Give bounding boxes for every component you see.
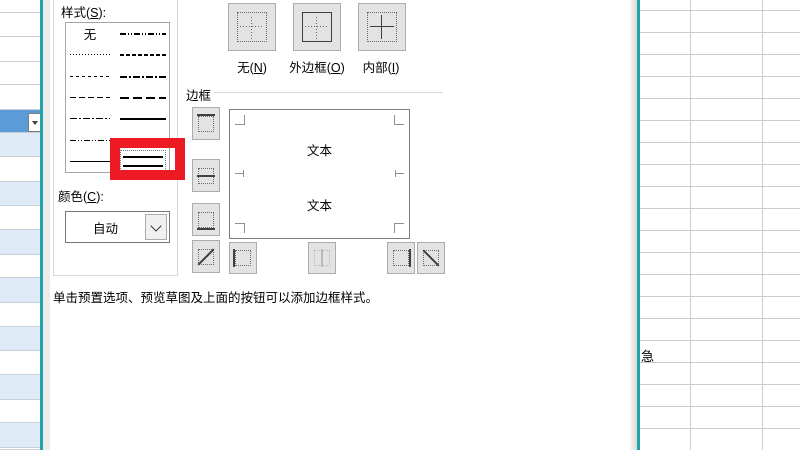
border-top-icon (198, 116, 214, 132)
sheet-row (0, 0, 40, 13)
solid-line (321, 249, 323, 267)
line-style-medium[interactable] (120, 108, 166, 129)
dialog-edge-band-left (43, 0, 50, 450)
line-style-sample (120, 97, 166, 99)
background-spreadsheet-right: 急 (640, 0, 800, 450)
border-left-icon (235, 250, 251, 266)
border-inner-horizontal-icon (198, 168, 214, 184)
line-style-medium-dashed[interactable] (120, 87, 166, 108)
border-group-label: 边框 (186, 85, 211, 104)
border-right-icon (393, 250, 409, 266)
sheet-gridline (690, 0, 691, 450)
dotted-square (198, 116, 214, 132)
border-right-button[interactable] (387, 242, 415, 274)
preview-mid-tick (395, 173, 404, 174)
line-style-sample (120, 54, 166, 56)
line-style-hair[interactable] (70, 44, 110, 65)
sheet-row (0, 13, 40, 37)
line-style-sample (70, 76, 110, 77)
sheet-gridline (762, 0, 763, 450)
line-style-none[interactable]: 无 (70, 23, 110, 44)
border-preview-box[interactable]: 文本 文本 (229, 109, 410, 239)
dotted-square (198, 212, 214, 228)
sheet-row (0, 255, 40, 278)
preview-mid-tick (235, 173, 244, 174)
cross-horizontal (370, 26, 394, 27)
border-diagonal-up-button[interactable] (192, 240, 220, 273)
preset-button-inside[interactable] (358, 3, 406, 51)
border-group-separator (214, 92, 443, 93)
color-combobox-dropdown-button[interactable] (145, 214, 167, 240)
border-bottom-icon (198, 212, 214, 228)
color-label: 颜色(C): (58, 186, 104, 205)
preset-button-none[interactable] (228, 3, 276, 51)
cross-horizontal (240, 26, 264, 27)
dotted-square (393, 250, 409, 266)
line-style-sample (120, 76, 166, 78)
hint-text: 单击预置选项、预览草图及上面的按钮可以添加边框样式。 (53, 287, 613, 306)
line-style-dash-dot-dot[interactable] (70, 130, 110, 151)
preview-corner-mark (235, 115, 245, 125)
sheet-row (0, 278, 40, 303)
line-style-slant-dash-dot[interactable] (120, 44, 166, 65)
line-style-medium-dash-dot[interactable] (120, 66, 166, 87)
border-diagonal-down-icon (423, 250, 439, 266)
red-annotation-box (110, 138, 185, 180)
cross-horizontal (305, 26, 329, 27)
screen: 样式(S): 无 颜色(C): 自动 无(N)外边框(O)内部(I) 边框 文本… (0, 0, 800, 450)
preset-none-icon (237, 12, 267, 42)
line-style-thin[interactable] (70, 151, 110, 172)
border-left-button[interactable] (229, 242, 257, 274)
solid-line (197, 228, 215, 230)
sheet-row (0, 182, 40, 206)
border-diagonal-down-button[interactable] (417, 242, 445, 274)
preview-sample-text-top: 文本 (230, 140, 409, 159)
sheet-row (0, 157, 40, 182)
style-label: 样式(S): (61, 2, 106, 21)
sheet-row (0, 400, 40, 423)
line-style-sample (70, 54, 110, 55)
sheet-row (0, 423, 40, 448)
preset-button-outline[interactable] (293, 3, 341, 51)
line-style-sample (70, 161, 110, 162)
border-diagonal-up-icon (198, 249, 214, 265)
solid-line (197, 114, 215, 116)
line-style-dash-dot[interactable] (70, 108, 110, 129)
sheet-row (0, 206, 40, 230)
line-style-dashed[interactable] (70, 87, 110, 108)
preview-corner-mark (394, 223, 404, 233)
cross-vertical (251, 15, 252, 39)
cross-vertical (381, 15, 382, 39)
sheet-row (0, 230, 40, 255)
sheet-row (0, 133, 40, 157)
border-inner-vertical-icon (314, 250, 330, 266)
dropdown-arrow-icon (32, 121, 38, 125)
line-style-sample (70, 140, 110, 141)
sheet-row (0, 375, 40, 400)
solid-line (233, 249, 235, 267)
line-style-sample (70, 118, 110, 119)
border-inner-vertical-button[interactable] (308, 242, 336, 274)
solid-line (409, 249, 411, 267)
cross-vertical (316, 15, 317, 39)
color-combobox[interactable]: 自动 (65, 211, 170, 243)
color-combobox-value: 自动 (66, 212, 145, 242)
line-style-sample (70, 97, 110, 98)
sheet-row (0, 37, 40, 62)
preview-corner-mark (235, 223, 245, 233)
preset-label: 无(N) (237, 57, 267, 76)
sheet-row (0, 351, 40, 375)
background-spreadsheet-left (0, 0, 40, 450)
background-cell-text: 急 (641, 346, 654, 365)
preset-inside-icon (367, 12, 397, 42)
sheet-row (0, 303, 40, 327)
line-style-sample (120, 118, 166, 120)
border-bottom-button[interactable] (192, 203, 220, 236)
solid-line (197, 175, 215, 177)
chevron-down-icon (150, 220, 161, 231)
preset-label: 外边框(O) (289, 57, 345, 76)
line-style-dotted[interactable] (70, 66, 110, 87)
preview-sample-text-bottom: 文本 (230, 195, 409, 214)
sheet-row (0, 85, 40, 110)
sheet-row (0, 327, 40, 351)
line-style-none-label: 无 (84, 24, 97, 43)
preset-outline-icon (302, 12, 332, 42)
dotted-square (235, 250, 251, 266)
line-style-medium-dash-dot-dot[interactable] (120, 23, 166, 44)
border-inner-horizontal-button[interactable] (192, 159, 220, 192)
preset-label: 内部(I) (363, 57, 400, 76)
dialog-edge-band-right (630, 0, 637, 450)
line-style-sample (120, 33, 166, 35)
sheet-row (0, 62, 40, 85)
border-top-button[interactable] (192, 107, 220, 140)
preview-corner-mark (394, 115, 404, 125)
